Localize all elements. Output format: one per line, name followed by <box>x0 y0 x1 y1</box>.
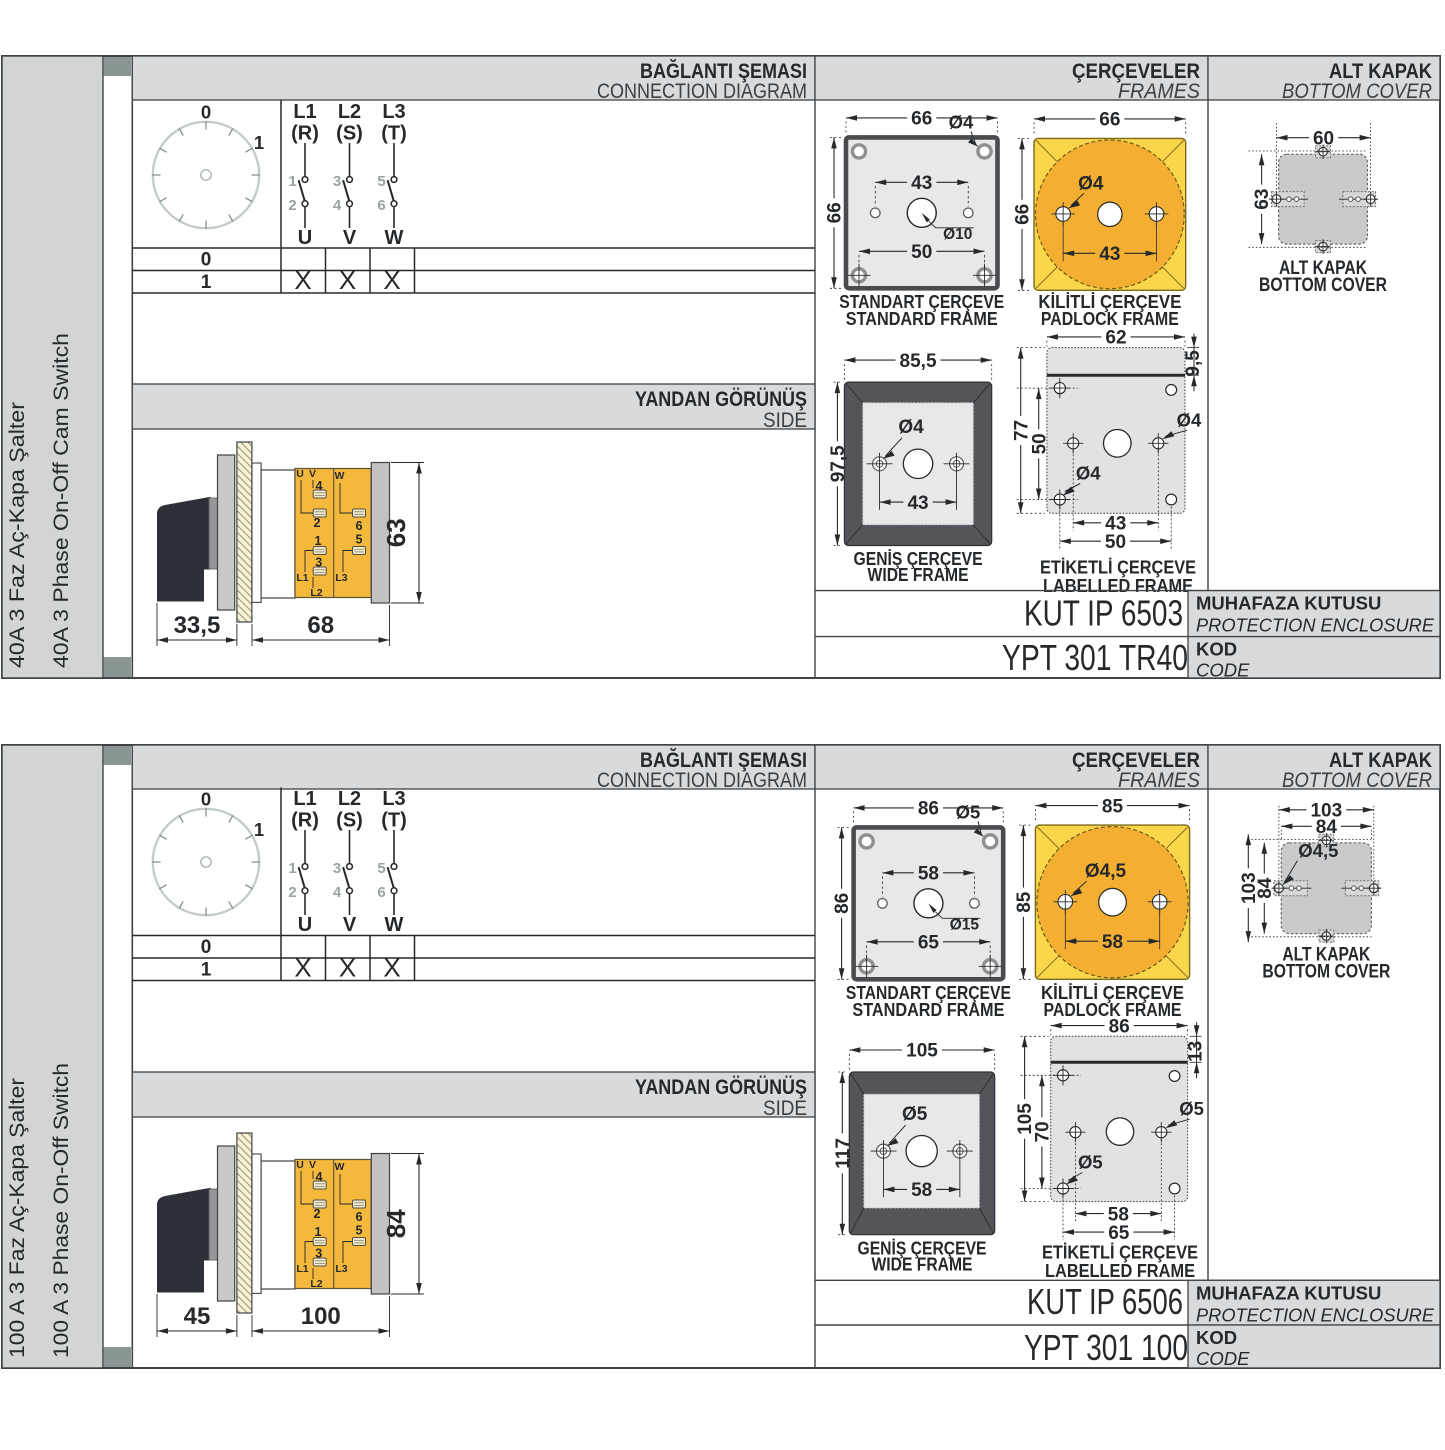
svg-text:CONNECTION DIAGRAM: CONNECTION DIAGRAM <box>597 769 807 792</box>
svg-text:43: 43 <box>907 493 928 514</box>
svg-text:BOTTOM COVER: BOTTOM COVER <box>1262 962 1390 983</box>
svg-text:1: 1 <box>288 173 296 190</box>
svg-text:5: 5 <box>377 860 385 877</box>
svg-text:1: 1 <box>254 819 264 840</box>
svg-text:4: 4 <box>333 197 342 214</box>
svg-text:85,5: 85,5 <box>900 351 937 372</box>
svg-text:YANDAN GÖRÜNÜŞ: YANDAN GÖRÜNÜŞ <box>635 1076 807 1099</box>
svg-text:100 A 3 Faz Aç-Kapa Şalter: 100 A 3 Faz Aç-Kapa Şalter <box>6 1078 29 1358</box>
svg-text:85: 85 <box>1102 796 1124 817</box>
svg-text:Ø5: Ø5 <box>1179 1098 1204 1119</box>
svg-text:60: 60 <box>1313 128 1334 149</box>
svg-text:84: 84 <box>1316 817 1338 838</box>
svg-text:62: 62 <box>1105 328 1126 349</box>
svg-text:40A 3 Faz Aç-Kapa Şalter: 40A 3 Faz Aç-Kapa Şalter <box>6 402 29 668</box>
svg-text:SIDE: SIDE <box>763 409 807 432</box>
svg-text:KOD: KOD <box>1196 1327 1237 1348</box>
svg-text:(S): (S) <box>336 810 363 832</box>
svg-text:66: 66 <box>1013 204 1034 225</box>
svg-text:BOTTOM COVER: BOTTOM COVER <box>1282 80 1432 103</box>
svg-text:X: X <box>339 953 356 983</box>
svg-text:Ø4: Ø4 <box>1076 463 1101 484</box>
svg-text:Ø4,5: Ø4,5 <box>1085 861 1127 882</box>
svg-text:45: 45 <box>184 1303 211 1330</box>
svg-text:63: 63 <box>381 518 411 547</box>
svg-text:(T): (T) <box>381 123 407 145</box>
svg-text:86: 86 <box>832 893 853 914</box>
svg-text:U: U <box>298 227 312 249</box>
svg-text:Ø4: Ø4 <box>1078 173 1104 194</box>
svg-text:86: 86 <box>1109 1016 1130 1037</box>
svg-text:70: 70 <box>1033 1121 1054 1142</box>
svg-text:100 A 3 Phase On-Off Switch: 100 A 3 Phase On-Off Switch <box>50 1063 73 1358</box>
svg-text:L3: L3 <box>382 788 405 810</box>
svg-text:1: 1 <box>314 1225 321 1239</box>
svg-text:Ø4,5: Ø4,5 <box>1298 840 1338 861</box>
svg-text:Ø10: Ø10 <box>943 226 972 243</box>
svg-text:YANDAN GÖRÜNÜŞ: YANDAN GÖRÜNÜŞ <box>635 388 807 411</box>
svg-text:66: 66 <box>1099 110 1120 131</box>
svg-text:BOTTOM COVER: BOTTOM COVER <box>1259 275 1387 296</box>
svg-text:L2: L2 <box>310 587 322 599</box>
svg-text:PROTECTION ENCLOSURE: PROTECTION ENCLOSURE <box>1196 1304 1435 1325</box>
svg-text:40A 3 Phase On-Off Cam Switch: 40A 3 Phase On-Off Cam Switch <box>50 333 73 668</box>
svg-text:KUT IP 6506: KUT IP 6506 <box>1027 1281 1183 1322</box>
svg-text:84: 84 <box>381 1209 411 1238</box>
svg-text:85: 85 <box>1014 891 1035 913</box>
svg-text:3: 3 <box>315 1247 322 1261</box>
svg-text:L3: L3 <box>335 572 347 584</box>
svg-text:FRAMES: FRAMES <box>1118 769 1200 792</box>
svg-text:4: 4 <box>315 479 322 493</box>
svg-text:L3: L3 <box>335 1263 347 1275</box>
svg-text:Ø4: Ø4 <box>949 111 974 132</box>
svg-text:LABELLED FRAME: LABELLED FRAME <box>1045 1261 1195 1281</box>
svg-text:3: 3 <box>333 860 341 877</box>
svg-text:117: 117 <box>833 1138 854 1169</box>
svg-text:L1: L1 <box>293 788 316 810</box>
svg-text:L2: L2 <box>310 1278 322 1290</box>
svg-text:2: 2 <box>288 197 296 214</box>
svg-text:65: 65 <box>1108 1223 1130 1244</box>
svg-text:FRAMES: FRAMES <box>1118 80 1200 103</box>
svg-text:6: 6 <box>355 519 362 533</box>
svg-text:CONNECTION DIAGRAM: CONNECTION DIAGRAM <box>597 80 807 103</box>
svg-text:L1: L1 <box>296 572 308 584</box>
svg-text:(S): (S) <box>336 123 363 145</box>
svg-text:BOTTOM COVER: BOTTOM COVER <box>1282 769 1432 792</box>
svg-text:43: 43 <box>1099 244 1120 265</box>
svg-text:0: 0 <box>201 102 211 123</box>
svg-text:13: 13 <box>1186 1041 1207 1062</box>
svg-text:V: V <box>343 914 357 936</box>
svg-text:(R): (R) <box>291 123 319 145</box>
svg-text:50: 50 <box>1105 532 1126 553</box>
svg-text:U: U <box>296 468 304 480</box>
svg-text:1: 1 <box>201 960 212 981</box>
svg-text:66: 66 <box>825 202 846 223</box>
svg-text:X: X <box>294 265 311 295</box>
svg-text:6: 6 <box>355 1210 362 1224</box>
svg-text:65: 65 <box>918 933 940 954</box>
svg-text:2: 2 <box>313 1207 320 1221</box>
svg-text:58: 58 <box>918 864 939 885</box>
svg-text:100: 100 <box>301 1303 341 1330</box>
svg-text:L1: L1 <box>296 1263 308 1275</box>
svg-text:63: 63 <box>1252 189 1273 210</box>
svg-text:W: W <box>335 1161 345 1173</box>
svg-text:MUHAFAZA KUTUSU: MUHAFAZA KUTUSU <box>1196 593 1381 614</box>
svg-text:86: 86 <box>918 799 939 820</box>
svg-text:L2: L2 <box>338 788 361 810</box>
svg-text:CODE: CODE <box>1196 1348 1250 1369</box>
svg-text:68: 68 <box>307 612 334 639</box>
svg-text:33,5: 33,5 <box>174 612 221 639</box>
svg-text:43: 43 <box>911 173 932 194</box>
svg-text:YPT 301 TR40: YPT 301 TR40 <box>1002 637 1188 678</box>
svg-text:50: 50 <box>911 242 932 263</box>
svg-text:0: 0 <box>201 789 211 810</box>
svg-text:X: X <box>383 265 400 295</box>
svg-text:STANDARD FRAME: STANDARD FRAME <box>852 1000 1004 1020</box>
svg-text:2: 2 <box>313 516 320 530</box>
svg-text:SIDE: SIDE <box>763 1097 807 1120</box>
svg-text:Ø5: Ø5 <box>1078 1152 1103 1173</box>
svg-text:6: 6 <box>377 197 385 214</box>
svg-text:Ø4: Ø4 <box>1177 409 1202 430</box>
svg-text:X: X <box>294 953 311 983</box>
svg-text:W: W <box>335 470 345 482</box>
svg-text:ETİKETLİ ÇERÇEVE: ETİKETLİ ÇERÇEVE <box>1040 558 1196 578</box>
svg-text:PROTECTION ENCLOSURE: PROTECTION ENCLOSURE <box>1196 615 1435 636</box>
svg-text:3: 3 <box>315 556 322 570</box>
svg-text:U: U <box>298 914 312 936</box>
svg-text:V: V <box>343 227 357 249</box>
svg-text:W: W <box>385 227 404 249</box>
svg-text:84: 84 <box>1255 877 1276 899</box>
svg-text:L2: L2 <box>338 101 361 123</box>
svg-text:5: 5 <box>377 173 385 190</box>
svg-text:1: 1 <box>254 132 264 153</box>
svg-text:KUT IP 6503: KUT IP 6503 <box>1024 593 1183 634</box>
svg-text:4: 4 <box>333 884 342 901</box>
svg-text:WIDE FRAME: WIDE FRAME <box>872 1255 973 1275</box>
svg-text:2: 2 <box>288 884 296 901</box>
svg-text:X: X <box>383 953 400 983</box>
svg-text:MUHAFAZA KUTUSU: MUHAFAZA KUTUSU <box>1196 1282 1381 1303</box>
svg-text:STANDARD FRAME: STANDARD FRAME <box>846 309 998 329</box>
svg-text:97,5: 97,5 <box>828 445 849 482</box>
svg-text:Ø5: Ø5 <box>902 1104 928 1125</box>
svg-text:W: W <box>385 914 404 936</box>
svg-text:YPT 301 100: YPT 301 100 <box>1024 1327 1188 1368</box>
svg-text:50: 50 <box>1029 433 1050 454</box>
svg-text:L3: L3 <box>382 101 405 123</box>
svg-text:Ø15: Ø15 <box>950 916 980 933</box>
svg-text:X: X <box>339 265 356 295</box>
svg-text:58: 58 <box>1102 932 1123 953</box>
svg-text:KOD: KOD <box>1196 639 1237 660</box>
svg-text:PADLOCK FRAME: PADLOCK FRAME <box>1041 309 1179 329</box>
svg-text:ETİKETLİ ÇERÇEVE: ETİKETLİ ÇERÇEVE <box>1042 1243 1198 1263</box>
svg-text:5: 5 <box>355 533 362 547</box>
svg-text:6: 6 <box>377 884 385 901</box>
svg-text:Ø5: Ø5 <box>956 801 981 822</box>
svg-text:1: 1 <box>201 272 212 293</box>
svg-text:U: U <box>296 1159 304 1171</box>
svg-text:0: 0 <box>201 250 212 271</box>
svg-text:(R): (R) <box>291 810 319 832</box>
svg-text:(T): (T) <box>381 810 407 832</box>
svg-text:0: 0 <box>201 937 212 958</box>
svg-text:Ø4: Ø4 <box>898 417 924 438</box>
svg-text:5: 5 <box>355 1224 362 1238</box>
svg-text:4: 4 <box>315 1170 322 1184</box>
svg-text:9,5: 9,5 <box>1183 350 1204 377</box>
svg-text:WIDE FRAME: WIDE FRAME <box>868 565 969 585</box>
svg-text:105: 105 <box>906 1041 938 1062</box>
svg-text:1: 1 <box>314 534 321 548</box>
svg-text:L1: L1 <box>293 101 316 123</box>
svg-text:CODE: CODE <box>1196 660 1250 681</box>
svg-text:66: 66 <box>911 109 932 130</box>
svg-text:1: 1 <box>288 860 296 877</box>
svg-text:58: 58 <box>911 1180 932 1201</box>
svg-text:3: 3 <box>333 173 341 190</box>
